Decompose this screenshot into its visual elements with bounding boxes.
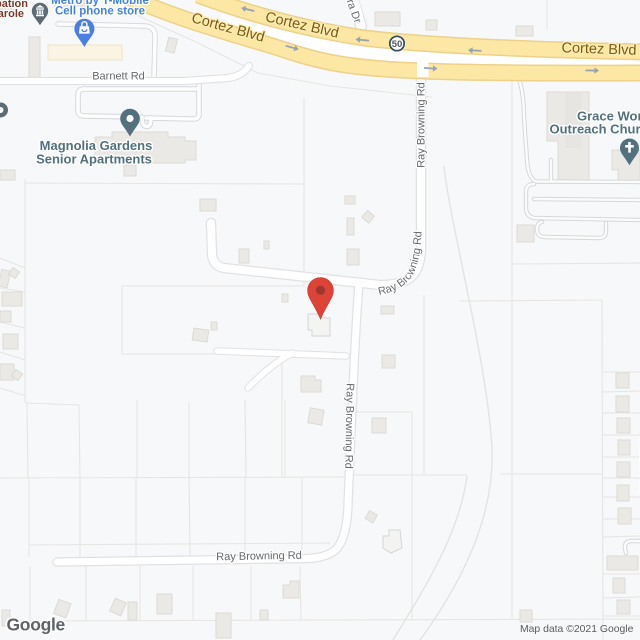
- svg-text:Ray Browning Rd: Ray Browning Rd: [342, 383, 355, 469]
- svg-text:Ray Browning Rd: Ray Browning Rd: [216, 550, 302, 563]
- svg-text:Senior Apartments: Senior Apartments: [36, 152, 152, 167]
- svg-text:Cortez Blvd: Cortez Blvd: [561, 40, 636, 59]
- svg-text:Map data ©2021 Google: Map data ©2021 Google: [520, 624, 634, 635]
- svg-text:Google: Google: [7, 615, 66, 635]
- svg-text:50: 50: [392, 39, 403, 50]
- svg-text:Parole: Parole: [0, 8, 24, 20]
- svg-text:Ray Browning Rd: Ray Browning Rd: [416, 82, 428, 168]
- svg-text:Cell phone store: Cell phone store: [55, 6, 145, 18]
- svg-text:Barnett Rd: Barnett Rd: [92, 71, 145, 83]
- svg-text:Outreach Church: Outreach Church: [550, 122, 640, 137]
